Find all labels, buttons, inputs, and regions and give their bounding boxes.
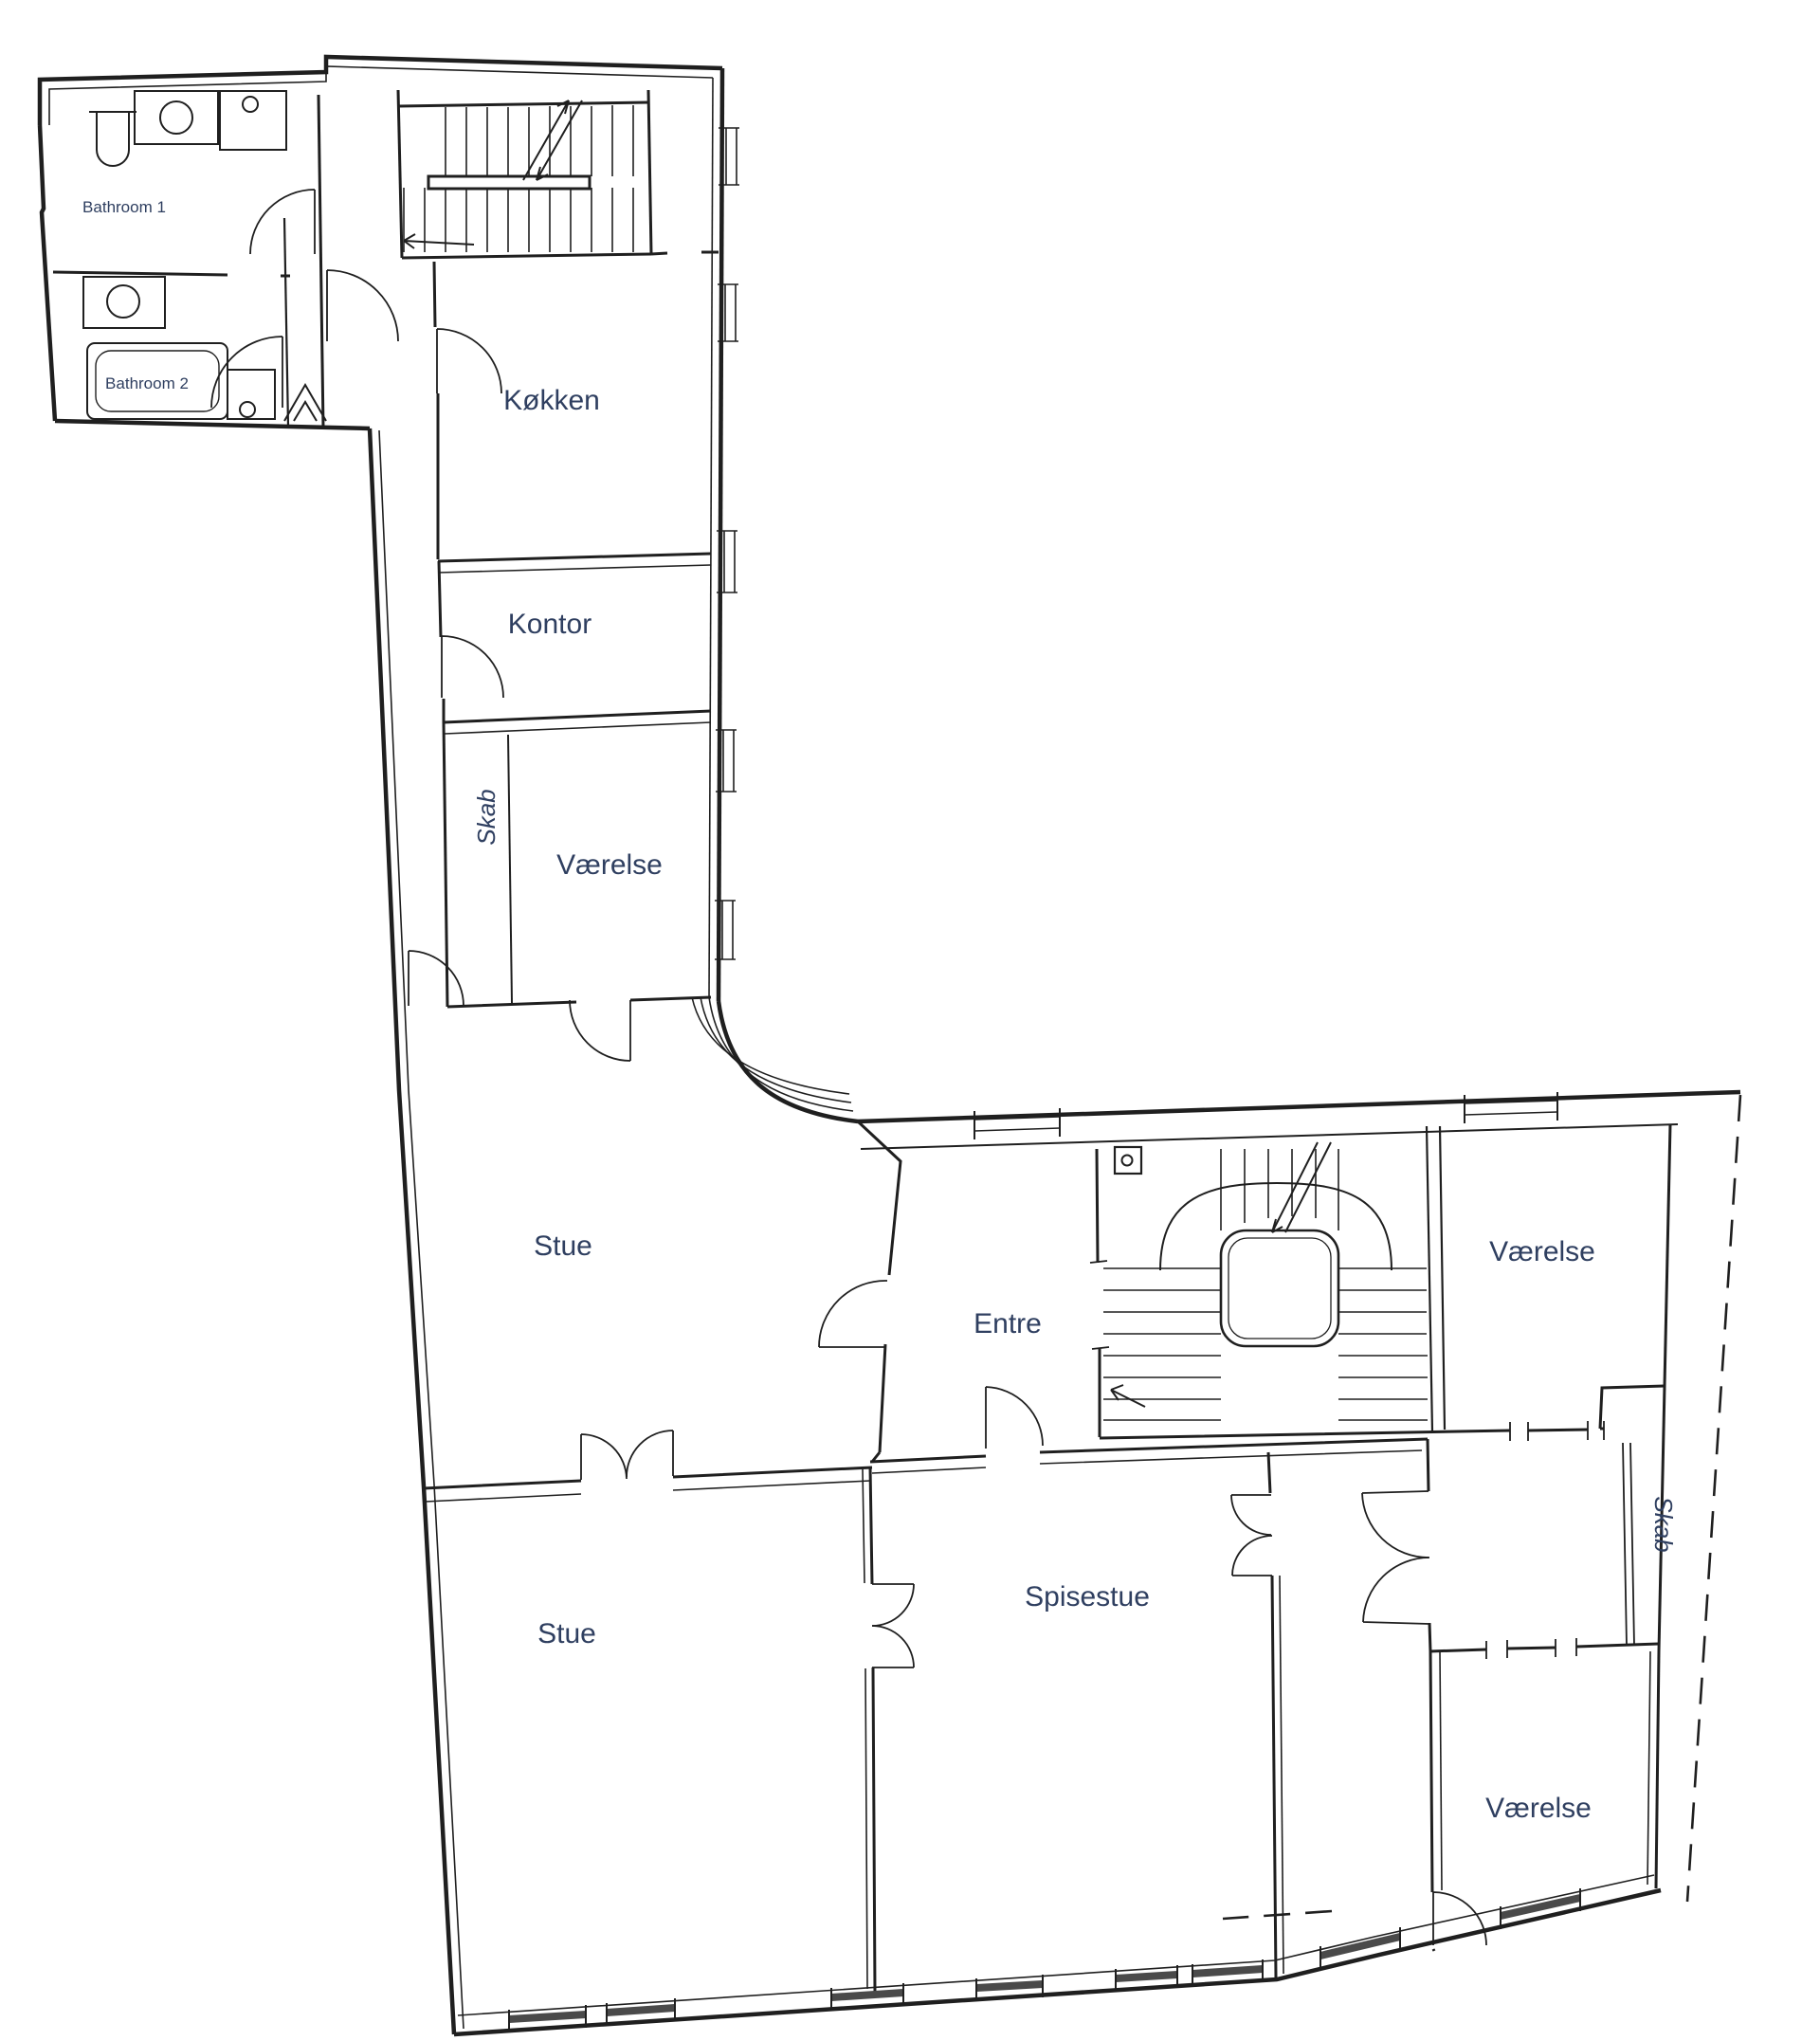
doors — [211, 190, 1486, 1945]
room-label-vaerelse-upper: Værelse — [556, 849, 663, 881]
room-label-spisestue: Spisestue — [1025, 1581, 1150, 1613]
room-label-skab-left: Skab — [472, 789, 500, 845]
staircase-main — [1103, 1142, 1428, 1420]
room-label-bathroom-1: Bathroom 1 — [82, 198, 166, 216]
room-label-stue-lower: Stue — [537, 1618, 596, 1649]
room-label-koekken: Køkken — [503, 385, 600, 416]
floor-plan-svg: Bathroom 1 Bathroom 2 Køkken Kontor Skab… — [0, 0, 1820, 2041]
room-label-skab-right: Skab — [1649, 1496, 1678, 1552]
room-label-entre: Entre — [974, 1308, 1042, 1339]
toilet-icon — [89, 112, 136, 166]
sink-alcove — [220, 91, 286, 150]
room-label-vaerelse-bottom-right: Værelse — [1485, 1793, 1592, 1824]
windows — [509, 128, 1580, 2032]
room-label-stue-upper: Stue — [534, 1230, 592, 1262]
tap-icon — [243, 97, 258, 112]
shower-icon — [284, 385, 326, 421]
sink-counter — [135, 91, 218, 144]
room-label-vaerelse-top-right: Værelse — [1489, 1236, 1595, 1267]
room-label-bathroom-2: Bathroom 2 — [105, 374, 189, 392]
outer-walls — [40, 57, 1740, 2034]
toilet-icon — [227, 370, 275, 419]
bathroom-fixtures — [83, 91, 326, 421]
staircase-top — [404, 100, 633, 252]
floor-plan-page: Bathroom 1 Bathroom 2 Køkken Kontor Skab… — [0, 0, 1820, 2041]
entry-door-detail — [1115, 1147, 1141, 1174]
sink-basin-icon — [107, 285, 139, 318]
room-label-kontor: Kontor — [508, 609, 591, 640]
sink-basin-icon — [160, 101, 192, 134]
inner-walls — [53, 90, 1665, 1993]
room-labels: Bathroom 1 Bathroom 2 Køkken Kontor Skab… — [82, 198, 1678, 1824]
